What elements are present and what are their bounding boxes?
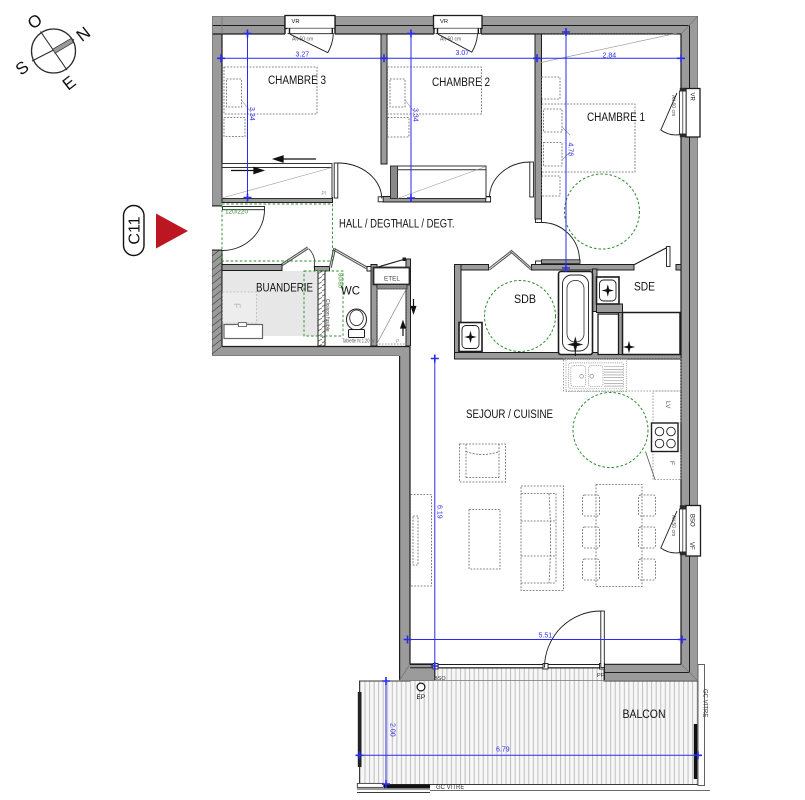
svg-text:BSO: BSO bbox=[689, 514, 695, 527]
svg-text:120/220: 120/220 bbox=[225, 210, 249, 216]
svg-text:3.34: 3.34 bbox=[412, 108, 419, 122]
svg-text:VR: VR bbox=[292, 19, 300, 25]
svg-text:2.84: 2.84 bbox=[603, 53, 617, 60]
svg-text:CHAMBRE 3: CHAMBRE 3 bbox=[268, 75, 326, 87]
svg-text:F: F bbox=[668, 461, 675, 465]
svg-text:3.07: 3.07 bbox=[456, 50, 470, 57]
svg-text:EP: EP bbox=[417, 694, 426, 701]
svg-text:4.76: 4.76 bbox=[567, 143, 574, 157]
svg-text:Cloison fusible: Cloison fusible bbox=[324, 299, 330, 332]
svg-text:Alt-50 cm: Alt-50 cm bbox=[292, 37, 313, 43]
svg-text:HALL / DEGT.: HALL / DEGT. bbox=[396, 219, 455, 231]
svg-text:SEJOUR / CUISINE: SEJOUR / CUISINE bbox=[466, 409, 553, 421]
svg-text:LV: LV bbox=[664, 401, 671, 409]
svg-text:6.79: 6.79 bbox=[496, 747, 510, 754]
svg-text:C11: C11 bbox=[127, 216, 144, 244]
svg-text:CHAMBRE 2: CHAMBRE 2 bbox=[432, 77, 490, 89]
svg-text:VF: VF bbox=[688, 542, 694, 550]
svg-text:PI: PI bbox=[322, 191, 327, 197]
svg-text:6.19: 6.19 bbox=[436, 505, 443, 519]
svg-text:SDE: SDE bbox=[634, 282, 655, 294]
svg-text:BALCON: BALCON bbox=[623, 709, 666, 721]
svg-text:3.34: 3.34 bbox=[248, 107, 255, 121]
svg-text:BSO: BSO bbox=[434, 676, 446, 682]
svg-text:3.27: 3.27 bbox=[296, 52, 310, 59]
svg-text:5.51: 5.51 bbox=[539, 633, 553, 640]
svg-text:CHAMBRE 1: CHAMBRE 1 bbox=[587, 112, 645, 124]
svg-text:SDB: SDB bbox=[514, 294, 536, 306]
svg-text:PF: PF bbox=[597, 673, 605, 679]
svg-text:VR: VR bbox=[689, 93, 695, 102]
svg-text:HALL / DEGT.: HALL / DEGT. bbox=[339, 219, 398, 231]
svg-text:GC VITRE: GC VITRE bbox=[702, 689, 708, 717]
svg-text:Tablette ht 1.20 m: Tablette ht 1.20 m bbox=[342, 339, 374, 345]
svg-text:WC: WC bbox=[341, 286, 360, 298]
svg-text:ETEL: ETEL bbox=[384, 276, 400, 283]
svg-text:2.00: 2.00 bbox=[389, 723, 396, 737]
svg-text:BUANDERIE: BUANDERIE bbox=[256, 283, 313, 295]
svg-text:VR: VR bbox=[440, 19, 448, 25]
svg-text:F: F bbox=[232, 303, 242, 309]
